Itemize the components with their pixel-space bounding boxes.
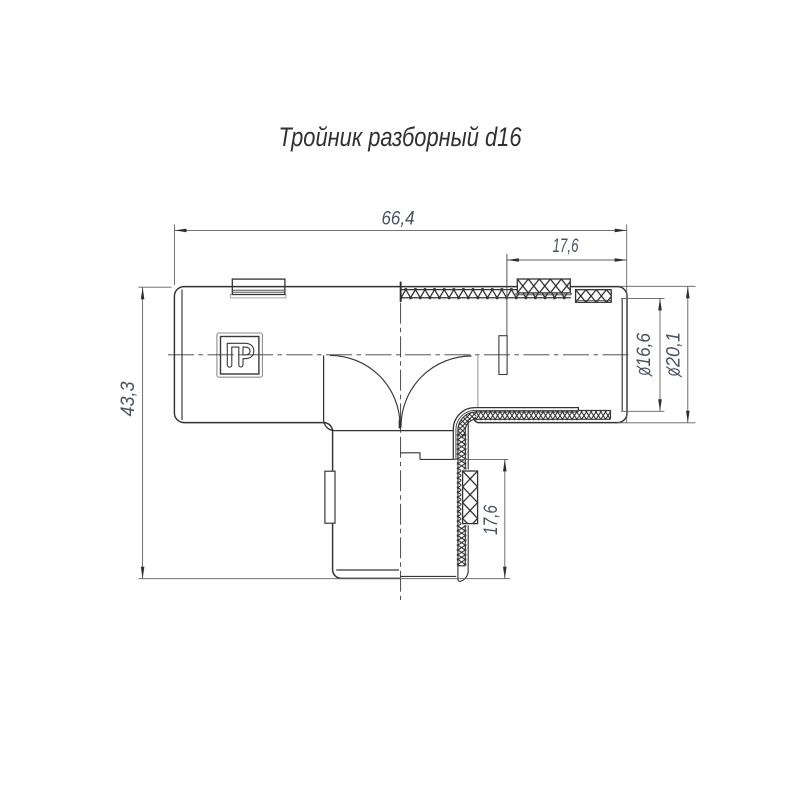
svg-text:66,4: 66,4 <box>382 209 415 230</box>
svg-text:43,3: 43,3 <box>118 381 139 416</box>
svg-text:17,6: 17,6 <box>481 505 502 535</box>
svg-text:17,6: 17,6 <box>553 236 579 257</box>
svg-text:20,1: 20,1 <box>664 332 685 368</box>
svg-text:16,6: 16,6 <box>634 333 655 367</box>
svg-text:Тройник разборный d16: Тройник разборный d16 <box>279 122 523 152</box>
